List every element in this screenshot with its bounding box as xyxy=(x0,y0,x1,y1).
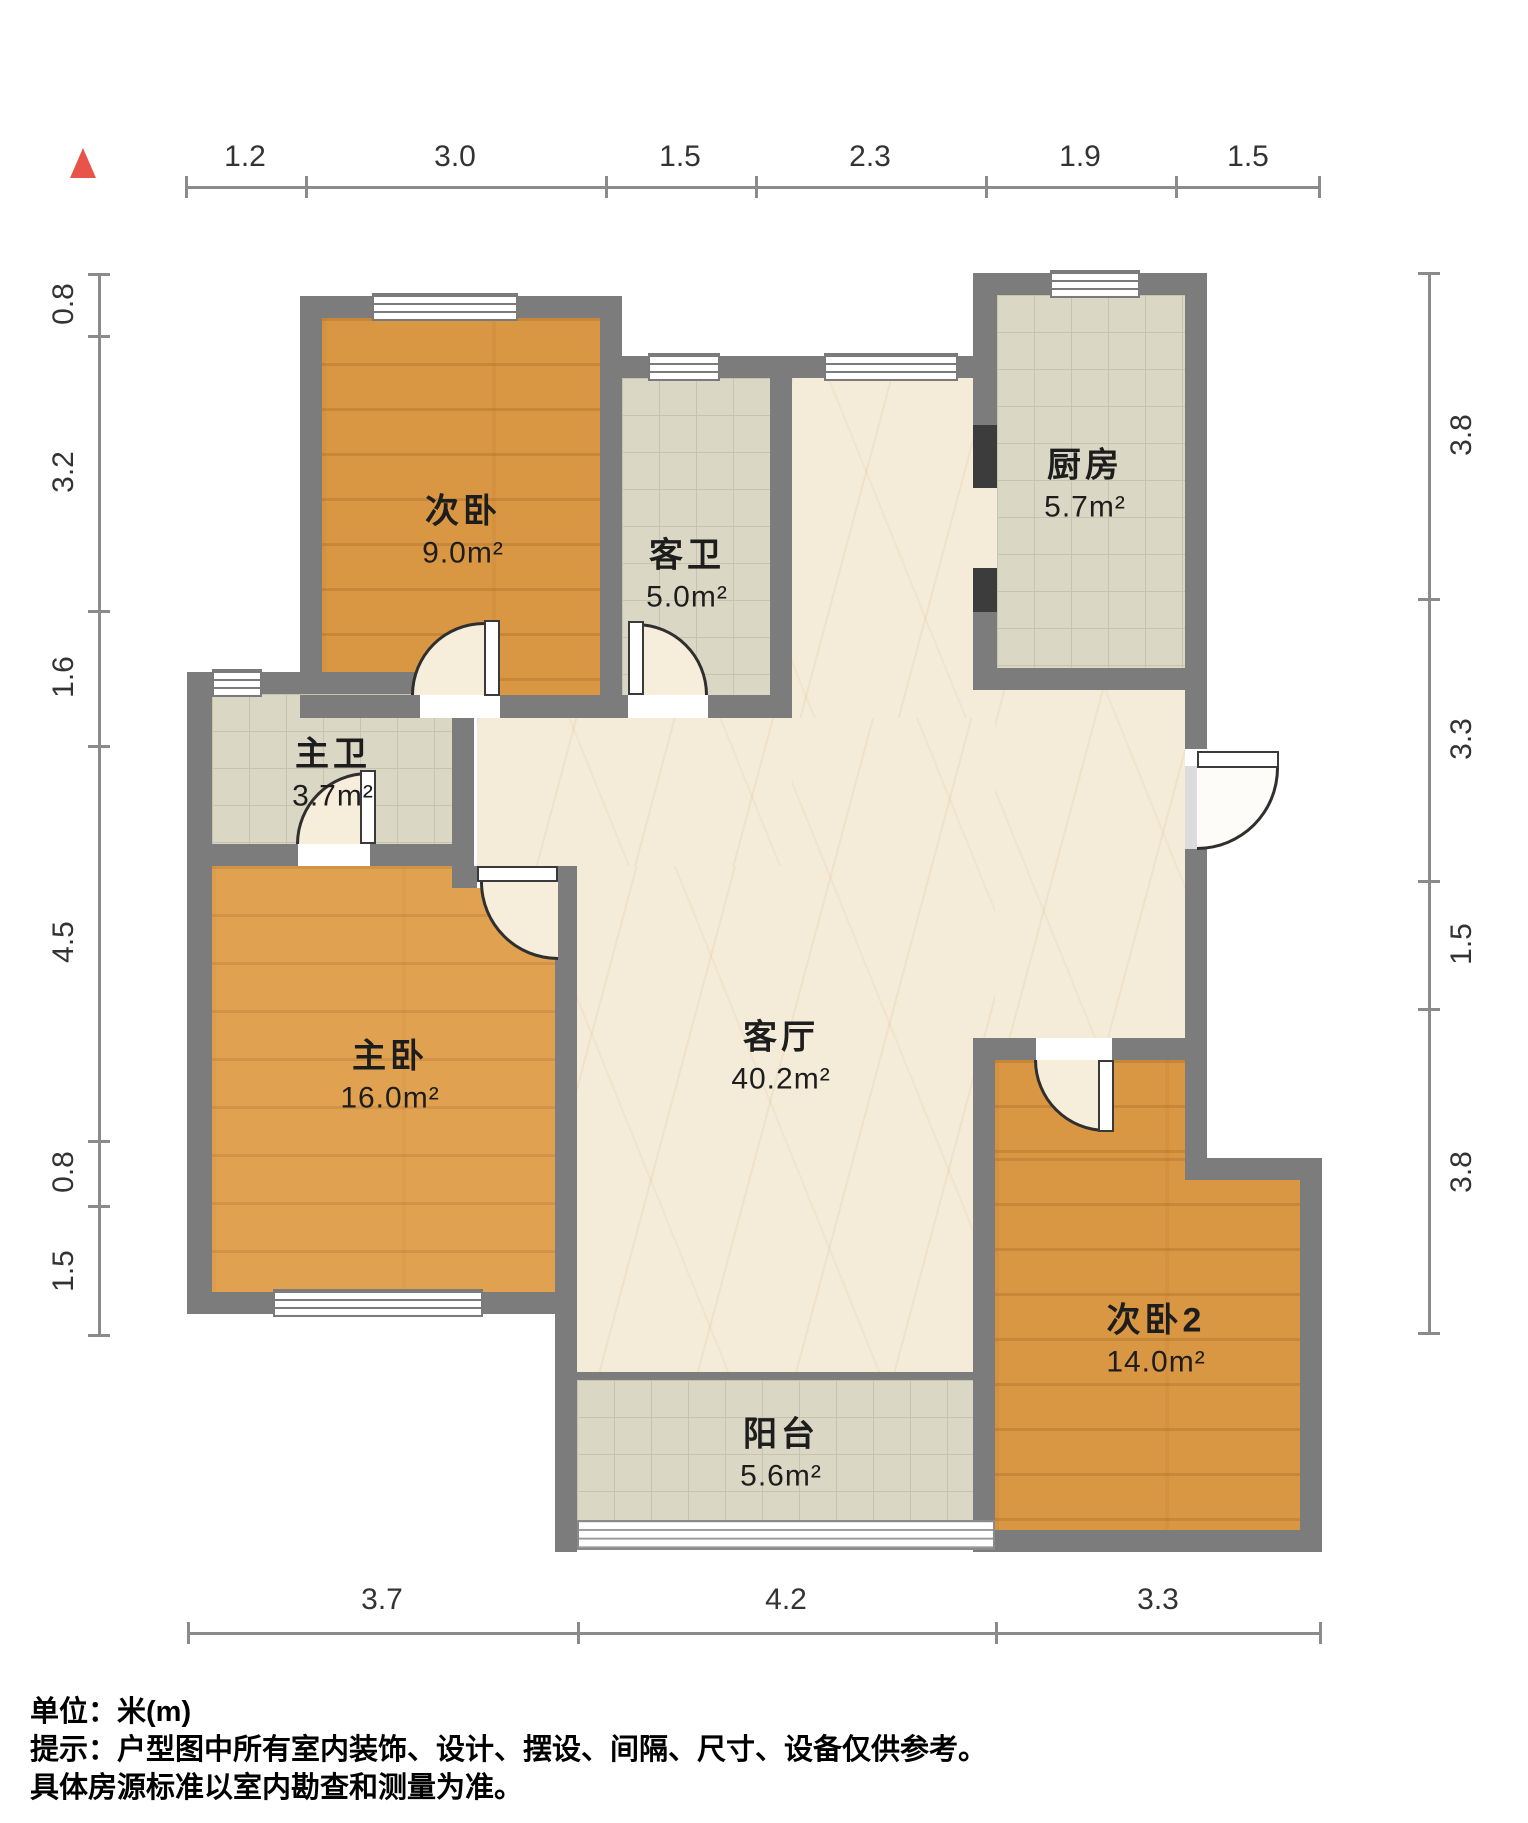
room-area: 9.0m² xyxy=(422,537,504,571)
hallway-floor xyxy=(477,718,792,866)
door-jamb xyxy=(973,568,997,612)
dim-tick xyxy=(185,176,188,198)
room-name: 次卧2 xyxy=(1106,1293,1205,1342)
wall xyxy=(555,866,577,1552)
north-marker-icon xyxy=(70,148,96,178)
wall xyxy=(973,273,997,425)
dim-tick xyxy=(755,176,758,198)
room-area: 5.6m² xyxy=(740,1460,822,1494)
dim-tick xyxy=(1418,1008,1440,1011)
dim-tick xyxy=(88,273,110,276)
room-label-cibedroom: 次卧 9.0m² xyxy=(422,484,504,571)
wall xyxy=(187,672,212,1314)
dim-label-bottom: 3.3 xyxy=(1137,1583,1179,1617)
balcony-railing xyxy=(577,1520,995,1550)
dim-label-bottom: 3.7 xyxy=(361,1583,403,1617)
dim-tick xyxy=(305,176,308,198)
dim-label-left: 3.2 xyxy=(47,451,81,493)
room-name: 阳台 xyxy=(740,1407,822,1456)
wall xyxy=(187,844,298,866)
dim-label-left: 1.6 xyxy=(47,656,81,698)
room-area: 5.7m² xyxy=(1044,491,1126,525)
door-leaf xyxy=(1098,1060,1114,1132)
room-label-kitchen: 厨房 5.7m² xyxy=(1044,438,1126,525)
dim-tick xyxy=(605,176,608,198)
room-name: 主卫 xyxy=(292,727,374,776)
wall xyxy=(1112,1038,1207,1060)
dim-line-top xyxy=(185,186,1320,189)
window xyxy=(1050,270,1140,298)
wall xyxy=(452,866,477,888)
dim-label-top: 1.2 xyxy=(224,140,266,174)
door-jamb xyxy=(973,425,997,488)
room-label-master-bedroom: 主卧 16.0m² xyxy=(340,1029,439,1116)
dim-tick xyxy=(1175,176,1178,198)
dim-label-left: 1.5 xyxy=(47,1250,81,1292)
entry-door-leaf xyxy=(1197,751,1279,768)
window xyxy=(273,1289,483,1317)
room-name: 客卫 xyxy=(646,528,728,577)
wall xyxy=(973,668,1207,690)
room-label-balcony: 阳台 5.6m² xyxy=(740,1407,822,1494)
door-opening xyxy=(298,844,370,866)
dim-line-bottom xyxy=(187,1632,1322,1635)
wall xyxy=(300,296,322,694)
dim-tick xyxy=(88,610,110,613)
dim-tick xyxy=(88,1334,110,1337)
window xyxy=(212,669,262,697)
room-name: 次卧 xyxy=(422,484,504,533)
dim-label-left: 0.8 xyxy=(47,1151,81,1193)
dim-tick xyxy=(1318,176,1321,198)
dim-tick xyxy=(1418,598,1440,601)
door-opening xyxy=(1036,1038,1112,1060)
room-label-guest-bath: 客卫 5.0m² xyxy=(646,528,728,615)
wall xyxy=(973,1038,995,1552)
wall xyxy=(1185,273,1207,749)
wall xyxy=(370,844,452,866)
dim-tick xyxy=(1319,1622,1322,1644)
window xyxy=(824,353,958,381)
wall xyxy=(300,695,420,718)
room-label-living-room: 客厅 40.2m² xyxy=(731,1010,830,1097)
wall xyxy=(1300,1158,1322,1552)
door-opening xyxy=(628,695,708,718)
room-name: 客厅 xyxy=(731,1010,830,1059)
room-name: 主卧 xyxy=(340,1029,439,1078)
room-area: 3.7m² xyxy=(292,780,374,814)
room-label-master-bath: 主卫 3.7m² xyxy=(292,727,374,814)
door-leaf xyxy=(628,621,644,695)
dim-tick xyxy=(1418,1332,1440,1335)
dim-line-left xyxy=(98,273,101,1337)
balcony-divider xyxy=(577,1372,995,1380)
footer-tip-line1: 提示：户型图中所有室内装饰、设计、摆设、间隔、尺寸、设备仅供参考。 xyxy=(30,1726,987,1768)
dim-label-top: 1.9 xyxy=(1059,140,1101,174)
dim-label-left: 0.8 xyxy=(47,283,81,325)
window xyxy=(648,353,720,381)
dim-label-top: 1.5 xyxy=(1227,140,1269,174)
dim-label-right: 3.8 xyxy=(1445,414,1479,456)
dim-label-top: 3.0 xyxy=(434,140,476,174)
dim-line-right xyxy=(1428,272,1431,1335)
door-leaf xyxy=(477,866,558,882)
dim-tick xyxy=(88,1140,110,1143)
footer-tip-line2: 具体房源标准以室内勘查和测量为准。 xyxy=(30,1764,523,1806)
door-leaf xyxy=(484,620,500,696)
room-area: 14.0m² xyxy=(1106,1346,1205,1380)
dim-tick xyxy=(995,1622,998,1644)
dim-tick xyxy=(985,176,988,198)
dim-label-right: 3.8 xyxy=(1445,1151,1479,1193)
dim-tick xyxy=(88,1205,110,1208)
entry-door-swing xyxy=(1197,768,1279,850)
dim-label-bottom: 4.2 xyxy=(765,1583,807,1617)
door-opening xyxy=(420,695,500,718)
dim-label-top: 2.3 xyxy=(849,140,891,174)
wall xyxy=(973,1530,1322,1552)
room-area: 40.2m² xyxy=(731,1063,830,1097)
dim-label-top: 1.5 xyxy=(659,140,701,174)
room-name: 厨房 xyxy=(1044,438,1126,487)
room-label-cibedroom2: 次卧2 14.0m² xyxy=(1106,1293,1205,1380)
dim-tick xyxy=(88,745,110,748)
dim-tick xyxy=(577,1622,580,1644)
wall xyxy=(1185,849,1207,1180)
dim-label-left: 4.5 xyxy=(47,921,81,963)
room-area: 5.0m² xyxy=(646,581,728,615)
wall xyxy=(500,695,628,718)
dim-label-right: 1.5 xyxy=(1445,923,1479,965)
window xyxy=(372,293,518,321)
dim-tick xyxy=(1418,880,1440,883)
wall xyxy=(708,695,792,718)
floor-plan-canvas: 1.2 3.0 1.5 2.3 1.9 1.5 0.8 3.2 1.6 4.5 … xyxy=(0,0,1528,1823)
dim-label-right: 3.3 xyxy=(1445,718,1479,760)
footer-unit-line: 单位：米(m) xyxy=(30,1688,191,1730)
wall xyxy=(770,356,792,718)
dim-tick xyxy=(187,1622,190,1644)
room-area: 16.0m² xyxy=(340,1082,439,1116)
dim-tick xyxy=(88,335,110,338)
dim-tick xyxy=(1418,272,1440,275)
